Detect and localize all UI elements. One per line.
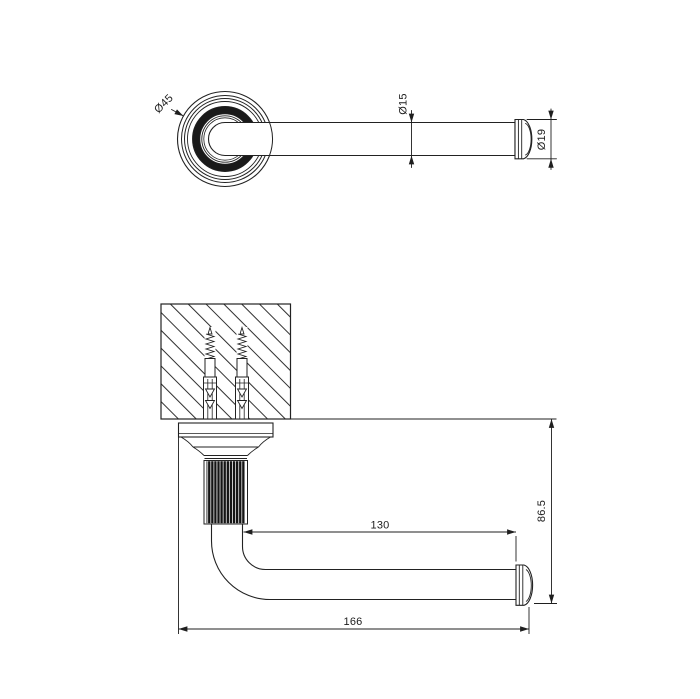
leader-line (172, 110, 184, 117)
screw-shank (205, 359, 215, 378)
drawing-svg: Ø45 Ø15 Ø19 (0, 0, 700, 699)
rosette-base-section (179, 423, 274, 459)
wall-plug-screw (204, 327, 217, 419)
end-cap-side (516, 565, 533, 605)
holder-bar-front (209, 123, 516, 156)
dimension-height: 86.5 (534, 419, 557, 604)
wall-plug-screw (236, 327, 249, 419)
dim-tube-diameter-label: Ø15 (398, 93, 410, 114)
dimension-arm-length: 130 (244, 520, 517, 562)
molding-profile (181, 437, 271, 459)
dimension-rosette-diameter: Ø45 (152, 92, 183, 116)
dim-overall-length-label: 166 (344, 616, 363, 628)
knurled-stem (204, 461, 248, 525)
side-view: 130 86.5 166 (161, 304, 557, 634)
dim-arm-length-label: 130 (371, 520, 390, 532)
front-view: Ø45 Ø15 Ø19 (152, 92, 556, 187)
technical-drawing: Ø45 Ø15 Ø19 (0, 0, 700, 699)
wall-section (161, 304, 291, 419)
end-cap-front (515, 120, 532, 159)
holder-bar-side (212, 524, 517, 600)
dim-rosette-diameter-label: Ø45 (152, 92, 176, 116)
dim-cap-diameter-label: Ø19 (536, 129, 548, 150)
dim-height-label: 86.5 (536, 500, 548, 522)
